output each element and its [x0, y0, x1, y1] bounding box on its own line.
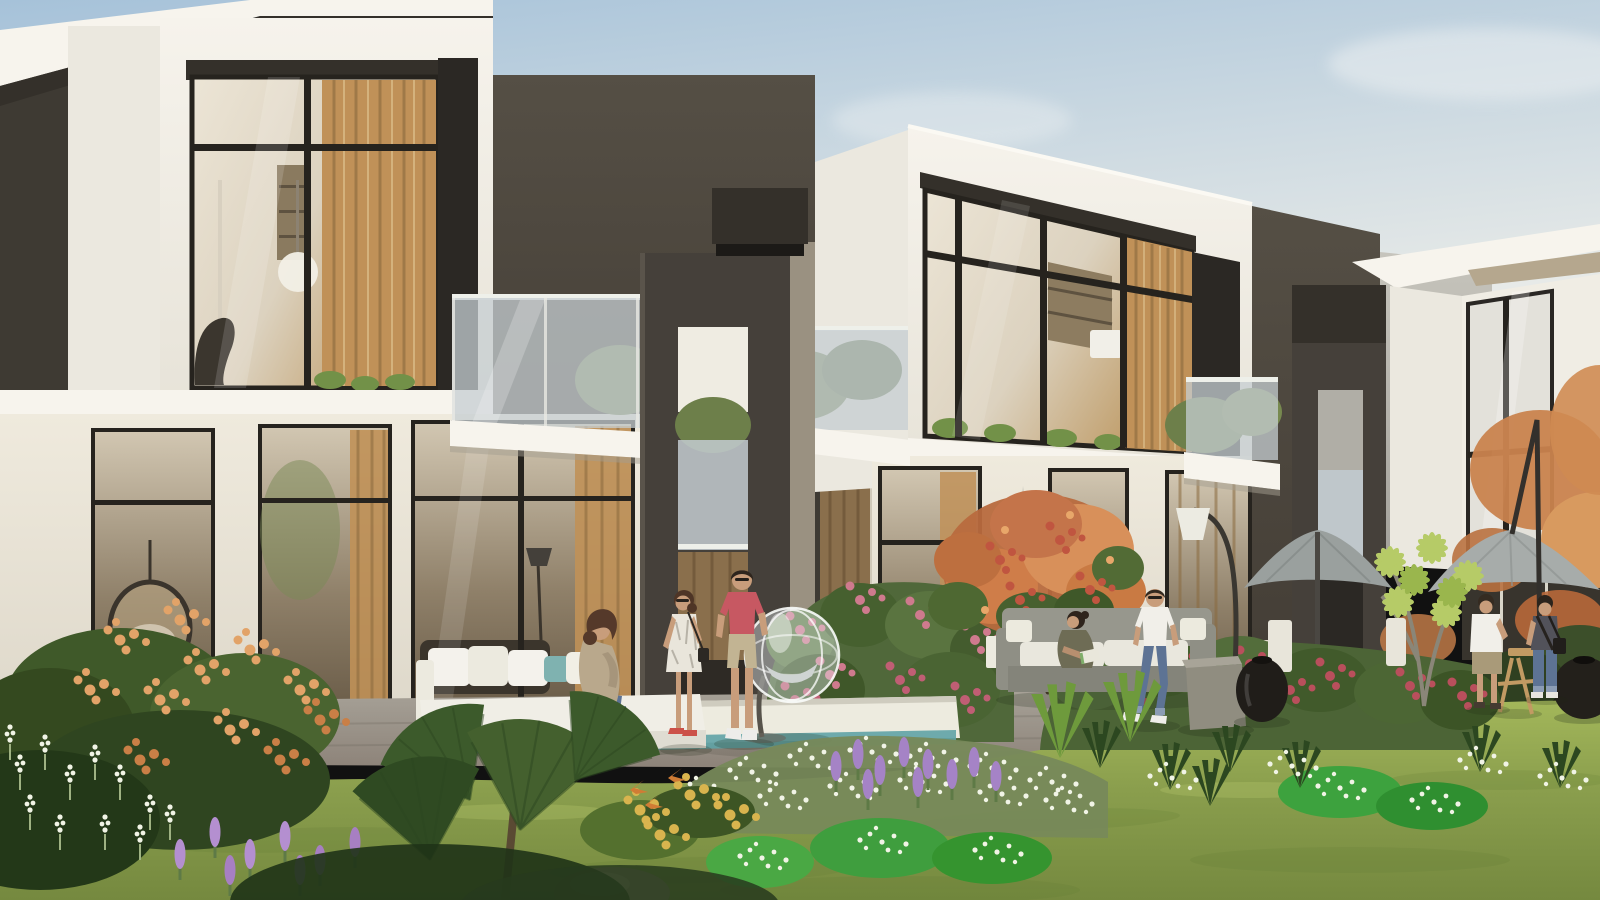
render-scene: Modern townhouse community — exterior ar…	[0, 0, 1600, 900]
glass-balcony-middle-right	[1184, 377, 1280, 496]
pendant-lamp	[1090, 330, 1122, 358]
glass-balcony-left	[450, 294, 642, 464]
right-cube-side	[1390, 286, 1462, 570]
white-planter	[1386, 618, 1406, 666]
curtains	[322, 80, 436, 386]
left-upper-window	[186, 58, 478, 398]
handbag	[698, 648, 709, 662]
left-party-wall	[0, 58, 68, 432]
camera-bag	[1553, 638, 1566, 654]
portal-canopy	[712, 188, 808, 244]
left-cube-side	[68, 26, 160, 432]
outdoor-sofa	[996, 608, 1220, 710]
architectural-render: Modern townhouse community — exterior ar…	[0, 0, 1600, 900]
glass-balcony-right-of-portal	[813, 326, 910, 466]
